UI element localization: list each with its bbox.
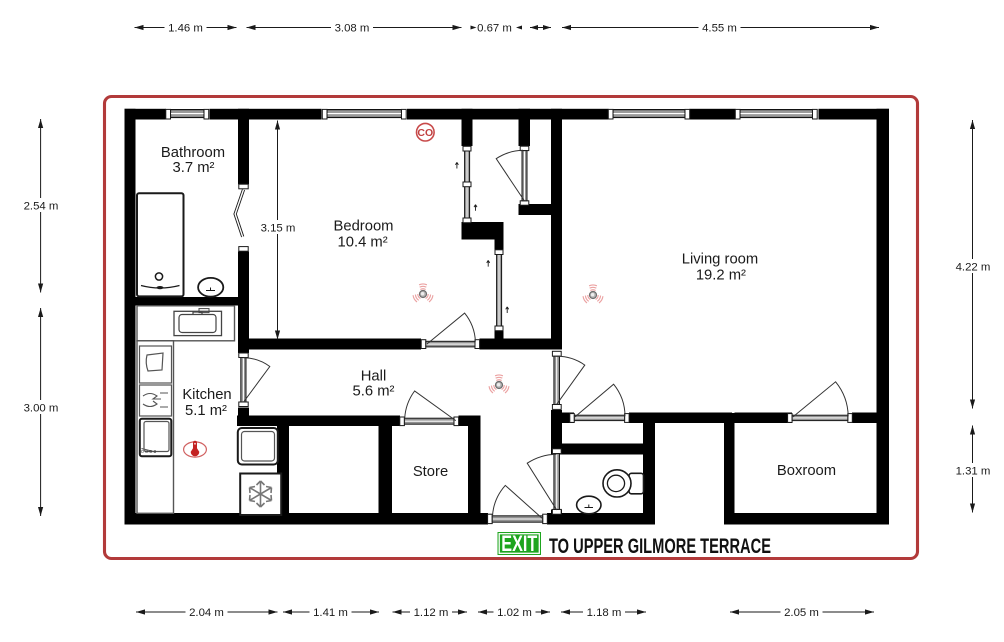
svg-text:CO: CO (417, 127, 433, 139)
svg-text:1.31 m: 1.31 m (956, 466, 991, 478)
svg-text:Store: Store (413, 464, 448, 480)
svg-text:3.00 m: 3.00 m (24, 403, 59, 415)
svg-text:1.12 m: 1.12 m (414, 607, 449, 619)
svg-text:5.1 m²: 5.1 m² (185, 403, 227, 419)
svg-text:Boxroom: Boxroom (777, 463, 836, 479)
svg-text:4.22 m: 4.22 m (956, 262, 991, 274)
svg-text:3.7 m²: 3.7 m² (173, 160, 215, 176)
svg-text:Hall: Hall (361, 369, 387, 385)
svg-text:o o o o: o o o o (141, 449, 157, 455)
svg-text:2.04 m: 2.04 m (189, 607, 224, 619)
svg-text:1.18 m: 1.18 m (587, 607, 622, 619)
svg-text:Living room: Living room (682, 252, 758, 268)
svg-text:Kitchen: Kitchen (182, 387, 231, 403)
svg-text:1.46 m: 1.46 m (168, 23, 203, 35)
svg-text:2.05 m: 2.05 m (784, 607, 819, 619)
svg-text:3.08 m: 3.08 m (335, 23, 370, 35)
svg-text:1.41 m: 1.41 m (313, 607, 348, 619)
svg-text:19.2 m²: 19.2 m² (696, 267, 746, 283)
svg-text:2.54 m: 2.54 m (24, 201, 59, 213)
svg-text:EXIT: EXIT (501, 531, 537, 556)
svg-text:0.67 m: 0.67 m (477, 23, 512, 35)
svg-text:5.6 m²: 5.6 m² (353, 384, 395, 400)
svg-text:4.55 m: 4.55 m (702, 23, 737, 35)
svg-text:1.02 m: 1.02 m (497, 607, 532, 619)
svg-text:Bathroom: Bathroom (161, 145, 225, 161)
svg-text:10.4 m²: 10.4 m² (338, 235, 388, 251)
svg-text:TO UPPER GILMORE TERRACE: TO UPPER GILMORE TERRACE (549, 535, 771, 558)
svg-text:3.15 m: 3.15 m (261, 223, 296, 235)
svg-text:Bedroom: Bedroom (333, 219, 393, 235)
